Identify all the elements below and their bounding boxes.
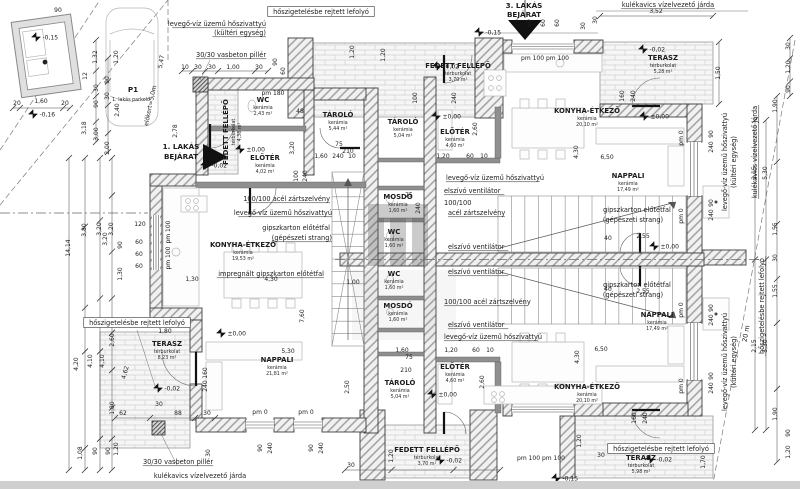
annotation-label: 1,20 xyxy=(380,48,387,62)
annotation-label: 60 xyxy=(135,239,143,246)
annotation-label: 240 xyxy=(642,412,649,424)
elevation-value: ±0,00 xyxy=(439,392,458,399)
room-area: 5,28 m² xyxy=(654,69,673,75)
room-name: WC xyxy=(257,96,270,104)
annotation-label: 4,30 xyxy=(574,350,581,364)
elevation-value: -0,02 xyxy=(447,458,463,465)
annotation-label: levegő-víz üzemű hőszivattyú xyxy=(446,173,544,182)
annotation-label: 90 xyxy=(117,241,124,249)
annotation-label: 1,55 xyxy=(772,222,779,236)
annotation-label: 75 xyxy=(405,192,413,199)
annotation-label: levegő-víz üzemű hőszivattyú xyxy=(720,113,729,211)
annotation-label: 40 xyxy=(604,235,612,242)
annotation-label: 240 xyxy=(202,380,209,392)
annotation-label: 1,20 xyxy=(349,45,356,59)
annotation-label: 30 xyxy=(347,462,355,469)
annotation-label: 2,40 xyxy=(114,103,121,117)
room-name: FEDETT FELLÉPŐ xyxy=(221,99,230,165)
annotation-label: 10 xyxy=(181,64,189,71)
room-label: TÁROLÓkerámia5,04 m² xyxy=(388,117,419,139)
annotation-label: 1,90 xyxy=(772,407,779,421)
annotation-label: 120 xyxy=(134,221,146,228)
annotation-label: 30 xyxy=(580,22,587,30)
room-name: TERASZ xyxy=(648,54,678,62)
annotation-label: 90 xyxy=(708,199,715,207)
room-area: 1,60 m² xyxy=(389,317,408,323)
annotation-label: 4,30 xyxy=(573,145,580,159)
annotation-label: 210 xyxy=(342,148,354,155)
annotation-label: pm 0 xyxy=(678,378,685,394)
annotation-label: pm 0 xyxy=(678,302,685,318)
annotation-label: levegő-víz üzemű hőszivattyú xyxy=(168,19,266,28)
annotation-label: (gépészeti strang) xyxy=(272,234,332,242)
annotation-label: 88 xyxy=(174,410,182,417)
room-name: ELŐTÉR xyxy=(440,362,470,371)
annotation-label: 62 xyxy=(119,410,127,417)
annotation-label: 10 xyxy=(480,153,488,160)
annotation-label: 240 xyxy=(267,442,274,454)
annotation-label: 2,78 xyxy=(172,124,179,138)
room-label: NAPPALIkerámia17,49 m² xyxy=(612,172,645,193)
annotation-label: 60 xyxy=(280,67,287,75)
annotation-label: 1,30 xyxy=(185,276,199,283)
annotation-label: 1,32 xyxy=(92,50,99,64)
room-finish: kerámia xyxy=(253,104,272,111)
room-label: ELŐTÉRkerámia4,02 m² xyxy=(250,153,280,175)
room-label: TÁROLÓkerámia5,04 m² xyxy=(385,378,416,400)
room-name: TÁROLÓ xyxy=(323,110,354,119)
room-finish: kerámia xyxy=(618,180,637,187)
annotation-label: levegő-víz üzemű hőszivattyú xyxy=(444,332,542,341)
elevation-marker: ±0,00 xyxy=(650,242,680,251)
room-name: ELŐTÉR xyxy=(440,127,470,136)
annotation-label: 1,55 xyxy=(772,284,779,298)
elevation-value: -0,02 xyxy=(657,457,673,464)
annotation-label: 3,18 xyxy=(81,121,88,135)
annotation-label: pm 100 xyxy=(165,220,172,243)
annotation-label: 90 xyxy=(785,429,792,437)
annotation-label: 3,52 xyxy=(649,8,663,15)
room-area: 2,43 m² xyxy=(254,111,273,117)
annotation-label: 7,60 xyxy=(299,309,306,323)
annotation-label: gipszkarton előtétfal xyxy=(603,205,671,214)
window-south-left-1 xyxy=(246,420,274,429)
annotation-label: 30 xyxy=(255,64,263,71)
annotation-label: 90 xyxy=(92,447,99,455)
entrance-3-line2: BEJÁRAT xyxy=(507,10,541,19)
elevation-value: -0,15 xyxy=(43,35,59,42)
elevation-value: ±0,00 xyxy=(443,114,462,121)
elevation-marker: -0,16 xyxy=(29,110,56,119)
room-finish: kerámia xyxy=(233,249,252,256)
annotation-label: 1,30 xyxy=(117,267,124,281)
room-finish: térburkolat xyxy=(230,119,237,146)
sofa xyxy=(596,366,684,382)
annotation-label: 160 xyxy=(631,412,638,424)
room-finish: kerámia xyxy=(388,201,407,208)
window-east-lower xyxy=(688,323,701,380)
elevation-marker: ±0,00 xyxy=(236,145,266,154)
annotation-label: 90 xyxy=(708,304,715,312)
room-name: WC xyxy=(388,228,401,236)
room-label: TÁROLÓkerámia5,44 m² xyxy=(323,110,354,132)
room-name: NAPPALI xyxy=(641,311,674,319)
room-name: WC xyxy=(388,270,401,278)
room-finish: kerámia xyxy=(647,319,666,326)
annotation-label: 240 xyxy=(708,209,715,221)
room-area: 17,49 m² xyxy=(617,187,639,193)
annotation-label: 2,50 xyxy=(344,380,351,394)
annotation-label: 3,20 xyxy=(289,141,296,155)
annotation-label: kulékavics vízelvezető járda xyxy=(622,0,714,9)
annotation-label: 6,50 xyxy=(594,346,608,353)
annotation-label: 30 xyxy=(208,64,216,71)
room-name: MOSDÓ xyxy=(383,301,412,310)
room-area: 5,04 m² xyxy=(391,394,410,400)
annotation-label: 4,10 xyxy=(99,354,106,368)
annotation-label: 20 m xyxy=(741,325,752,343)
annotation-label: gipszkarton előtétfal xyxy=(262,223,330,232)
annotation-label: 40 xyxy=(604,286,612,293)
window-north xyxy=(512,43,574,50)
annotation-label: 75 xyxy=(405,354,413,361)
room-name: KONYHA-ÉTKEZŐ xyxy=(554,382,620,391)
annotation-label: 100/100 acél zártszelvény xyxy=(444,298,531,306)
annotation-label: pm 180 xyxy=(261,90,284,97)
elevation-value: -0,15 xyxy=(486,30,502,37)
room-label: NAPPALIkerámia21,81 m² xyxy=(261,356,294,377)
annotation-label: 240 xyxy=(708,382,715,394)
annotation-label: 1,50 xyxy=(715,66,722,80)
elevation-value: -0,02 xyxy=(212,163,228,170)
annotation-label: 1,20 xyxy=(785,60,792,74)
annotation-label: kulékavics vízelvezető járda xyxy=(750,106,759,198)
floor-plan-page: P1 1. lakás parkoló előkert=5,0m 3. LAKÁ… xyxy=(0,0,800,489)
room-finish: térburkolat xyxy=(445,70,472,77)
annotation-label: 20 xyxy=(13,100,21,107)
annotation-label: elszívó ventilátor xyxy=(444,187,501,195)
annotation-label: 160 xyxy=(619,90,626,102)
refuse-store xyxy=(11,14,81,98)
annotation-label: (kültéri egység) xyxy=(730,136,738,188)
annotation-label: pm 0 xyxy=(298,409,314,416)
annotation-label: 1,20 xyxy=(576,434,583,448)
annotation-label: 2,60 xyxy=(109,333,116,347)
room-name: KONYHA-ÉTKEZŐ xyxy=(554,106,620,115)
annotation-label: 30 xyxy=(155,401,163,408)
room-name: FEDETT FELLÉPŐ xyxy=(394,445,460,454)
annotation-label: 1,00 xyxy=(226,64,240,71)
annotation-label: 14,14 xyxy=(65,239,72,256)
annotation-label: pm 0 xyxy=(678,208,685,224)
annotation-label: 2,55 xyxy=(636,288,650,295)
entrance-1-line1: 1. LAKÁS xyxy=(163,142,200,151)
sofa xyxy=(596,128,684,144)
annotation-label: pm 0 xyxy=(678,130,685,146)
room-area: 4,60 m² xyxy=(446,378,465,384)
annotation-label: 30 xyxy=(772,254,779,262)
annotation-label: (kültéri egység) xyxy=(214,29,266,37)
concrete-pillar xyxy=(152,421,165,435)
annotation-label: 240 xyxy=(708,314,715,326)
annotation-label: 3,80 xyxy=(81,223,88,237)
annotation-label: 30 xyxy=(203,410,211,417)
annotation-label: 5,30 xyxy=(281,348,295,355)
room-area: 21,81 m² xyxy=(266,371,288,377)
stove xyxy=(484,70,506,96)
elevation-marker: ±0,00 xyxy=(428,390,458,399)
room-area: 3,70 m² xyxy=(449,77,468,83)
room-area: 17,49 m² xyxy=(646,326,668,332)
room-area: 1,60 m² xyxy=(385,243,404,249)
annotation-label: levegő-víz üzemű hőszivattyú xyxy=(720,313,729,411)
annotation-label: (kültéri egység) xyxy=(730,336,738,388)
room-finish: kerámia xyxy=(445,371,464,378)
annotation-label: 240 xyxy=(708,141,715,153)
annotation-label: pm 100 xyxy=(165,246,172,269)
annotation-label: 1,20 xyxy=(113,50,120,64)
annotation-label: 90 xyxy=(708,372,715,380)
annotation-label: 2,15 xyxy=(751,339,758,353)
annotation-label: 2,55 xyxy=(636,233,650,240)
annotation-label: 1,60 xyxy=(395,347,409,354)
room-finish: kerámia xyxy=(390,387,409,394)
scan-edge-bar xyxy=(0,481,800,489)
room-label: ELŐTÉRkerámia4,60 m² xyxy=(440,362,470,384)
annotation-label: 90 xyxy=(104,76,111,84)
annotation-label: 30 xyxy=(592,16,599,24)
elevation-marker: ±0,00 xyxy=(432,112,462,121)
annotation-label: 90 xyxy=(257,444,264,452)
annotation-label: 30/30 vasbeton pillér xyxy=(143,458,213,466)
room-area: 19,53 m² xyxy=(232,256,254,262)
room-finish: kerámia xyxy=(388,310,407,317)
elevation-value: ±0,00 xyxy=(651,114,670,121)
room-finish: térburkolat xyxy=(650,62,677,69)
elevation-value: ±0,00 xyxy=(228,331,247,338)
annotation-label: 60 xyxy=(540,19,547,27)
room-area: 20,10 m² xyxy=(576,398,598,404)
annotation-label: 60 xyxy=(554,19,561,27)
annotation-label: 30 xyxy=(785,42,792,50)
annotation-label: 3,20 xyxy=(96,222,103,236)
room-area: 20,10 m² xyxy=(576,122,598,128)
annotation-label: 2,60 xyxy=(472,122,479,136)
room-finish: kerámia xyxy=(267,364,286,371)
room-finish: kerámia xyxy=(384,236,403,243)
annotation-label: pm 100 pm 100 xyxy=(521,55,569,62)
annotation-label: 210 xyxy=(400,367,412,374)
annotation-label: 1,20 xyxy=(436,153,450,160)
parking-caption: 1. lakás parkoló xyxy=(112,96,150,103)
room-label: WCkerámia2,43 m² xyxy=(253,96,272,117)
room-area: 4,60 m² xyxy=(446,143,465,149)
annotation-label: 10 xyxy=(486,347,494,354)
annotation-label: 30 xyxy=(194,64,202,71)
annotation-label: 1,60 xyxy=(314,153,328,160)
annotation-label: 1,20 xyxy=(113,442,120,456)
floor-plan-drawing: P1 1. lakás parkoló előkert=5,0m 3. LAKÁ… xyxy=(0,0,800,489)
annotation-label: 90 xyxy=(54,7,62,14)
annotation-label: 240 xyxy=(318,442,325,454)
elevation-value: -0,02 xyxy=(650,47,666,54)
annotation-label: 240 xyxy=(451,92,458,104)
room-area: 5,98 m² xyxy=(632,469,651,475)
annotation-label: 4,20 xyxy=(73,357,80,371)
annotation-label: 90 xyxy=(272,58,279,66)
room-name: TERASZ xyxy=(152,340,182,348)
annotation-label: 2,60 xyxy=(479,375,486,389)
annotation-label: 100 xyxy=(412,92,419,104)
annotation-label: 1,90 xyxy=(772,99,779,113)
annotation-label: 30 xyxy=(104,92,111,100)
window-south-left-2 xyxy=(294,420,322,429)
annotation-label: 5,47 xyxy=(157,54,166,69)
window-east-upper xyxy=(688,142,701,196)
room-finish: kerámia xyxy=(255,162,274,169)
annotation-label: hőszigetelésbe rejtett lefolyó xyxy=(613,444,709,453)
annotation-label: 30/30 vasbeton pillér xyxy=(196,51,266,59)
annotation-label: 30 xyxy=(205,449,212,457)
annotation-label: 60 xyxy=(135,251,143,258)
annotation-label: 1,70 xyxy=(700,455,707,469)
annotation-label: elszívó ventilátor xyxy=(448,321,505,329)
elevation-marker: -0,15 xyxy=(475,28,502,37)
annotation-label: kulékavics vízelvezető járda xyxy=(154,471,246,480)
annotation-label: 90 xyxy=(105,447,112,455)
room-name: TÁROLÓ xyxy=(385,378,416,387)
annotation-label: 60 xyxy=(526,19,533,27)
annotation-label: 1,80 xyxy=(158,328,172,335)
annotation-label: 1,20 xyxy=(785,445,792,459)
room-name: NAPPALI xyxy=(612,172,645,180)
annotation-label: 6,50 xyxy=(600,154,614,161)
annotation-label: 20 xyxy=(61,100,69,107)
annotation-label: 30 xyxy=(597,452,605,459)
front-yard-label: előkert=5,0m xyxy=(143,85,158,127)
party-wall-stub xyxy=(702,250,746,265)
room-area: 3,70 m² xyxy=(418,461,437,467)
room-name: NAPPALI xyxy=(261,356,294,364)
annotation-label: pm 100 pm 100 xyxy=(517,455,565,462)
elevation-value: -0,16 xyxy=(40,112,56,119)
annotation-label: pm 0 xyxy=(252,409,268,416)
window-west xyxy=(152,215,160,270)
room-area: 1,60 m² xyxy=(385,285,404,291)
elevation-value: -0,02 xyxy=(165,386,181,393)
room-area: 4,36 m² xyxy=(237,123,243,142)
annotation-label: hőszigetelésbe rejtett lefolyó xyxy=(89,318,185,327)
room-finish: kerámia xyxy=(393,126,412,133)
annotation-label: 100/100 acél zártszelvény xyxy=(243,195,330,203)
annotation-label: 60 xyxy=(466,153,474,160)
annotation-label: 90 xyxy=(308,444,315,452)
annotation-label: 1,00 xyxy=(346,279,360,286)
annotation-label: 1,80 xyxy=(109,401,116,415)
elevation-marker: ±0,00 xyxy=(640,112,670,121)
annotation-label: 90 xyxy=(93,100,100,108)
annotation-label: 75 xyxy=(335,141,343,148)
annotation-label: 60 xyxy=(135,263,143,270)
annotation-label: 2,15 xyxy=(751,166,758,180)
room-finish: kerámia xyxy=(328,119,347,126)
annotation-label: 160 xyxy=(202,367,209,379)
room-finish: kerámia xyxy=(384,278,403,285)
annotation-label: 1,20 xyxy=(444,347,458,354)
annotation-label: 240 xyxy=(302,170,309,182)
elevation-value: ±0,00 xyxy=(247,147,266,154)
annotation-label: 100 xyxy=(293,170,300,182)
annotation-label: (gépészeti strang) xyxy=(603,216,663,224)
annotation-label: 1,20 xyxy=(388,449,395,463)
annotation-label: (gépészeti strang) xyxy=(603,291,663,299)
annotation-label: 5,30 xyxy=(762,166,769,180)
room-area: 1,60 m² xyxy=(389,208,408,214)
annotation-label: 4,10 xyxy=(87,354,94,368)
room-name: TÁROLÓ xyxy=(388,117,419,126)
room-name: ELŐTÉR xyxy=(250,153,280,162)
elevation-value: ±0,00 xyxy=(661,244,680,251)
annotation-label: 240 xyxy=(630,90,637,102)
annotation-label: 30 xyxy=(93,84,100,92)
room-area: 8,23 m² xyxy=(158,355,177,361)
room-area: 4,02 m² xyxy=(256,169,275,175)
elevation-marker: ±0,00 xyxy=(217,329,247,338)
annotation-label: 240 xyxy=(415,202,422,214)
annotation-label: 60 xyxy=(472,347,480,354)
annotation-label: elszívó ventilátor xyxy=(448,268,505,276)
annotation-label: 90 xyxy=(785,85,792,93)
parking-spot-label: P1 xyxy=(128,85,138,94)
entrance-1-line2: BEJÁRAT xyxy=(164,152,198,161)
entrance-3-line1: 3. LAKÁS xyxy=(506,1,543,10)
room-area: 5,04 m² xyxy=(394,133,413,139)
annotation-label: elszívó ventilátor xyxy=(448,243,505,251)
annotation-label: levegő-víz üzemű hőszivattyú xyxy=(234,208,332,217)
annotation-label: 48 xyxy=(296,108,304,115)
annotation-label: 3,00 xyxy=(93,127,100,141)
annotation-label: 2,00 xyxy=(104,141,111,155)
annotation-label: 4,30 xyxy=(264,276,278,283)
annotation-label: 20 xyxy=(514,19,521,27)
annotation-label: 100/100 xyxy=(444,199,471,207)
annotation-label: 90 xyxy=(708,130,715,138)
window-south xyxy=(512,406,574,413)
room-finish: kerámia xyxy=(577,391,596,398)
room-finish: kerámia xyxy=(445,136,464,143)
elevation-value: -0,02 xyxy=(444,64,460,71)
annotation-label: acél zártszelvény xyxy=(448,209,505,217)
annotation-label: 1,60 xyxy=(34,98,48,105)
room-name: KONYHA-ÉTKEZŐ xyxy=(210,240,276,249)
annotation-label: 1,08 xyxy=(77,446,84,460)
annotation-label: 12 xyxy=(82,72,89,80)
annotation-label: hőszigetelésbe rejtett lefolyó xyxy=(273,7,369,16)
room-finish: térburkolat xyxy=(154,348,181,355)
room-area: 5,44 m² xyxy=(329,126,348,132)
annotation-label: 3,20 xyxy=(108,222,115,236)
room-label: ELŐTÉRkerámia4,60 m² xyxy=(440,127,470,149)
annotation-label: 5,30 xyxy=(762,339,769,353)
room-finish: kerámia xyxy=(577,115,596,122)
